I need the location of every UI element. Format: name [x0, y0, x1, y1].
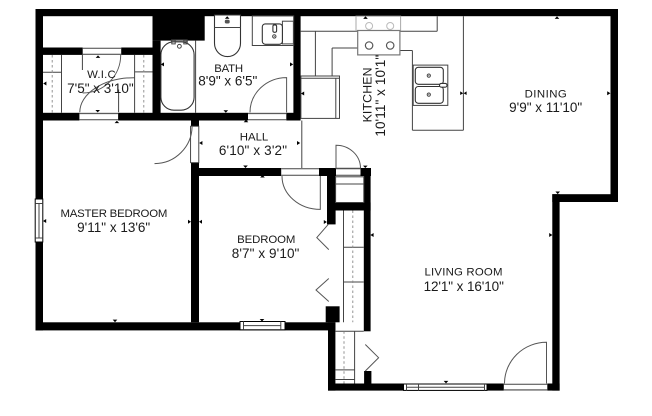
svg-text:LIVING ROOM: LIVING ROOM	[425, 267, 503, 279]
svg-text:9'11" x 13'6": 9'11" x 13'6"	[77, 220, 150, 235]
svg-text:8'9" x 6'5": 8'9" x 6'5"	[198, 73, 257, 88]
svg-text:10'11" x 10'1": 10'11" x 10'1"	[373, 55, 388, 137]
svg-text:8'7" x 9'10": 8'7" x 9'10"	[232, 246, 300, 261]
svg-text:6'10" x 3'2": 6'10" x 3'2"	[219, 143, 287, 158]
svg-text:BEDROOM: BEDROOM	[237, 234, 295, 246]
svg-text:W.I.C: W.I.C	[87, 69, 116, 81]
svg-text:7'5" x 3'10": 7'5" x 3'10"	[67, 81, 134, 96]
svg-text:9'9" x 11'10": 9'9" x 11'10"	[509, 100, 582, 115]
svg-text:12'1" x 16'10": 12'1" x 16'10"	[424, 279, 504, 294]
svg-text:DINING: DINING	[525, 88, 568, 100]
svg-text:HALL: HALL	[240, 132, 269, 144]
svg-text:MASTER BEDROOM: MASTER BEDROOM	[60, 208, 167, 220]
